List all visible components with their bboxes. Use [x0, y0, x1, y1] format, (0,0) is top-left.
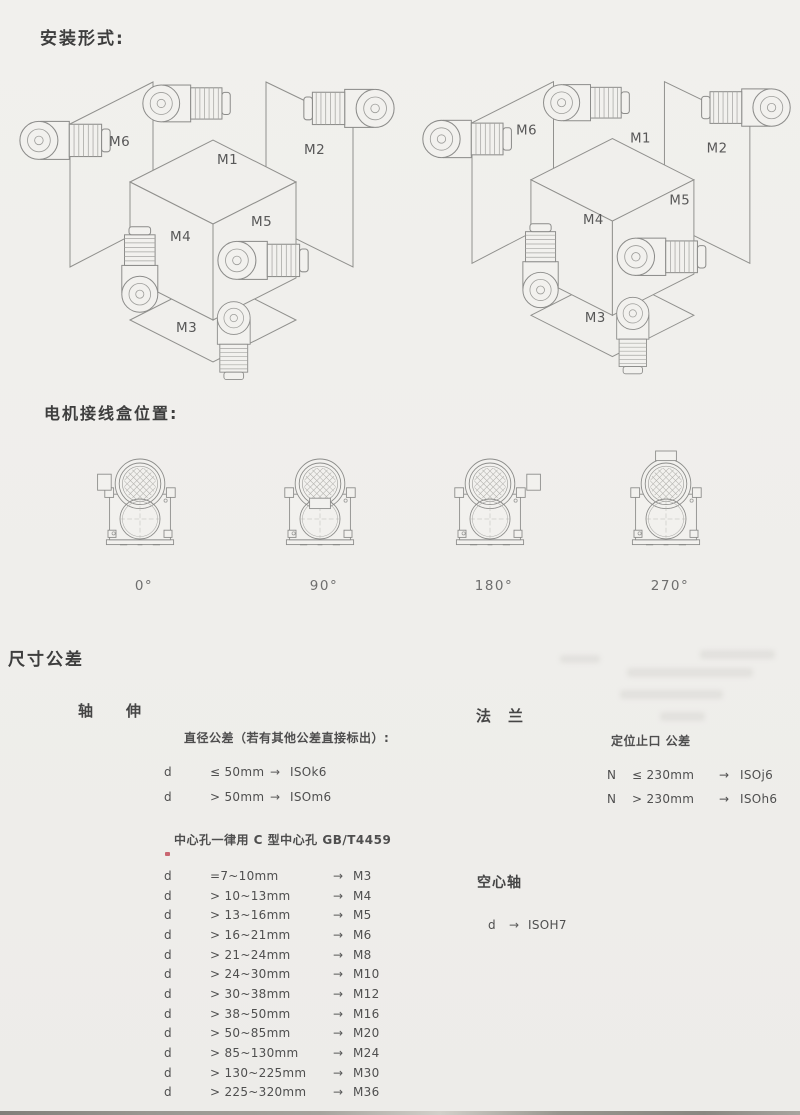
- arrow-icon: →: [270, 790, 290, 804]
- row-val: M30: [353, 1066, 380, 1080]
- junction-view-180-drawing: [446, 450, 542, 556]
- center-hole-row: d> 21~24mm→M8: [164, 948, 372, 962]
- center-hole-row: d=7~10mm→M3: [164, 869, 372, 883]
- bleed-through-mark: [620, 690, 723, 699]
- center-hole-row: d> 13~16mm→M5: [164, 908, 372, 922]
- mounting-label-m3-right: M3: [585, 311, 606, 326]
- mounting-diagram-right: M6 M1 M2 M4 M5 M3: [415, 62, 800, 386]
- shaft-row-val: ISOm6: [290, 790, 331, 804]
- row-sym: d: [164, 948, 210, 962]
- arrow-icon: →: [509, 918, 528, 932]
- row-val: M16: [353, 1007, 380, 1021]
- row-range: =7~10mm: [210, 869, 333, 883]
- row-sym: d: [164, 889, 210, 903]
- center-hole-row: d> 130~225mm→M30: [164, 1066, 380, 1080]
- junction-view-270: 270°: [610, 450, 730, 594]
- mounting-diagram-left: M6 M1 M2 M4 M5 M3: [12, 62, 404, 392]
- arrow-icon: →: [333, 1046, 353, 1060]
- junction-box-180: [527, 474, 541, 490]
- mounting-section-title: 安装形式:: [40, 24, 125, 49]
- flange-row: N≤ 230mm→ISOj6: [607, 768, 773, 782]
- junction-view-180: 180°: [434, 450, 554, 594]
- junction-box-90: [310, 498, 331, 508]
- shaft-row-val: ISOk6: [290, 765, 327, 779]
- flange-row-sym: N: [607, 768, 632, 782]
- row-val: M4: [353, 889, 372, 903]
- row-sym: d: [164, 1066, 210, 1080]
- hollow-row-val: ISOH7: [528, 918, 567, 932]
- catalog-page: 安装形式: M6 M1 M2 M4 M5 M3 M6 M1 M2 M4 M5 M…: [0, 0, 800, 1115]
- flange-row-cond: > 230mm: [632, 792, 719, 806]
- center-hole-row: d> 85~130mm→M24: [164, 1046, 380, 1060]
- mounting-diagram-left-drawing: [20, 82, 394, 380]
- row-sym: d: [164, 928, 210, 942]
- junction-angle-270: 270°: [610, 578, 730, 594]
- center-hole-row: d> 16~21mm→M6: [164, 928, 372, 942]
- arrow-icon: →: [333, 1026, 353, 1040]
- row-range: > 24~30mm: [210, 967, 333, 981]
- junction-section-title: 电机接线盒位置:: [44, 400, 178, 424]
- red-pen-mark: [165, 852, 170, 856]
- arrow-icon: →: [333, 889, 353, 903]
- mounting-label-m1: M1: [217, 152, 238, 168]
- row-val: M5: [353, 908, 372, 922]
- center-hole-row: d> 50~85mm→M20: [164, 1026, 380, 1040]
- flange-title: 法 兰: [476, 705, 524, 726]
- row-val: M24: [353, 1046, 380, 1060]
- mounting-label-m3: M3: [176, 320, 197, 336]
- mounting-label-m4: M4: [170, 229, 191, 245]
- junction-box-270: [656, 451, 677, 461]
- row-val: M36: [353, 1085, 380, 1099]
- bleed-through-mark: [627, 668, 753, 677]
- junction-view-90-drawing: [276, 450, 372, 556]
- scan-bottom-edge: [0, 1111, 800, 1115]
- center-hole-row: d> 225~320mm→M36: [164, 1085, 380, 1099]
- shaft-row-cond: ≤ 50mm: [210, 765, 270, 779]
- flange-row: N> 230mm→ISOh6: [607, 792, 777, 806]
- arrow-icon: →: [270, 765, 290, 779]
- arrow-icon: →: [333, 1066, 353, 1080]
- mounting-label-m5: M5: [251, 214, 272, 230]
- shaft-row: d≤ 50mm→ISOk6: [164, 765, 327, 779]
- row-val: M3: [353, 869, 372, 883]
- junction-box-0: [98, 474, 112, 490]
- flange-row-sym: N: [607, 792, 632, 806]
- flange-row-val: ISOh6: [740, 792, 777, 806]
- row-sym: d: [164, 987, 210, 1001]
- shaft-row-sym: d: [164, 765, 210, 779]
- row-sym: d: [164, 1046, 210, 1060]
- row-sym: d: [164, 1007, 210, 1021]
- row-range: > 30~38mm: [210, 987, 333, 1001]
- mounting-label-m6: M6: [109, 134, 130, 150]
- arrow-icon: →: [333, 869, 353, 883]
- shaft-note: 直径公差（若有其他公差直接标出）:: [184, 729, 389, 746]
- junction-angle-90: 90°: [264, 578, 384, 594]
- mounting-label-m4-right: M4: [583, 213, 604, 228]
- row-val: M6: [353, 928, 372, 942]
- arrow-icon: →: [719, 768, 740, 782]
- bleed-through-mark: [560, 655, 600, 663]
- shaft-row-sym: d: [164, 790, 210, 804]
- row-val: M8: [353, 948, 372, 962]
- row-range: > 85~130mm: [210, 1046, 333, 1060]
- junction-view-270-drawing: [622, 450, 718, 556]
- junction-angle-0: 0°: [84, 578, 204, 594]
- row-sym: d: [164, 908, 210, 922]
- mounting-label-m2: M2: [304, 142, 325, 158]
- row-range: > 21~24mm: [210, 948, 333, 962]
- tolerance-section-title: 尺寸公差: [8, 645, 84, 670]
- row-val: M20: [353, 1026, 380, 1040]
- hollow-row-sym: d: [488, 918, 509, 932]
- row-val: M12: [353, 987, 380, 1001]
- flange-row-cond: ≤ 230mm: [632, 768, 719, 782]
- flange-row-val: ISOj6: [740, 768, 773, 782]
- arrow-icon: →: [333, 928, 353, 942]
- arrow-icon: →: [333, 908, 353, 922]
- flange-note: 定位止口 公差: [611, 732, 691, 749]
- junction-view-90: 90°: [264, 450, 384, 594]
- center-hole-note: 中心孔一律用 C 型中心孔 GB/T4459: [174, 831, 391, 848]
- mounting-label-m6-right: M6: [516, 124, 537, 139]
- arrow-icon: →: [333, 1085, 353, 1099]
- row-sym: d: [164, 1085, 210, 1099]
- shaft-row: d> 50mm→ISOm6: [164, 790, 331, 804]
- junction-view-0: 0°: [84, 450, 204, 594]
- mounting-diagram-right-drawing: [423, 82, 790, 374]
- row-range: > 38~50mm: [210, 1007, 333, 1021]
- mounting-label-m2-right: M2: [707, 141, 728, 156]
- junction-view-0-drawing: [96, 450, 192, 556]
- shaft-title: 轴 伸: [78, 700, 142, 721]
- row-range: > 16~21mm: [210, 928, 333, 942]
- row-sym: d: [164, 967, 210, 981]
- row-val: M10: [353, 967, 380, 981]
- row-range: > 130~225mm: [210, 1066, 333, 1080]
- hollow-shaft-title: 空心轴: [477, 872, 522, 892]
- mounting-label-m1-right: M1: [630, 132, 651, 147]
- arrow-icon: →: [333, 987, 353, 1001]
- junction-angle-180: 180°: [434, 578, 554, 594]
- row-range: > 50~85mm: [210, 1026, 333, 1040]
- mounting-label-m5-right: M5: [669, 193, 690, 208]
- center-hole-row: d> 24~30mm→M10: [164, 967, 380, 981]
- bleed-through-mark: [700, 650, 775, 659]
- center-hole-row: d> 30~38mm→M12: [164, 987, 380, 1001]
- arrow-icon: →: [333, 948, 353, 962]
- row-range: > 13~16mm: [210, 908, 333, 922]
- arrow-icon: →: [333, 967, 353, 981]
- hollow-shaft-row: d→ISOH7: [488, 918, 567, 932]
- center-hole-row: d> 10~13mm→M4: [164, 889, 372, 903]
- row-sym: d: [164, 869, 210, 883]
- row-range: > 225~320mm: [210, 1085, 333, 1099]
- row-sym: d: [164, 1026, 210, 1040]
- center-hole-row: d> 38~50mm→M16: [164, 1007, 380, 1021]
- shaft-row-cond: > 50mm: [210, 790, 270, 804]
- arrow-icon: →: [719, 792, 740, 806]
- arrow-icon: →: [333, 1007, 353, 1021]
- bleed-through-mark: [660, 712, 705, 721]
- row-range: > 10~13mm: [210, 889, 333, 903]
